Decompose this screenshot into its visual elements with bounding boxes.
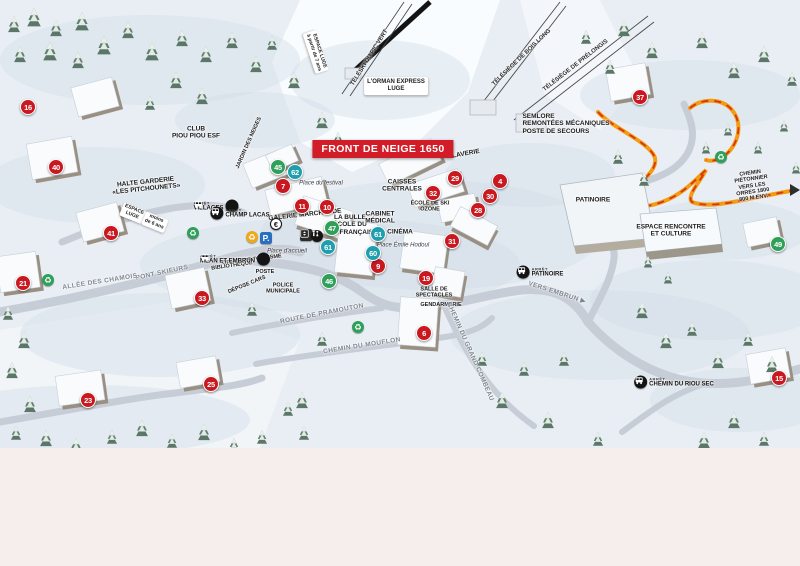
map-marker-4: 4 <box>492 173 508 189</box>
map-label: CLUB PIOU PIOU ESF <box>172 126 220 141</box>
recycle-yellow-icon: ♻ <box>246 231 258 243</box>
front-de-neige-banner: FRONT DE NEIGE 1650 <box>312 140 453 158</box>
map-marker-40: 40 <box>48 159 64 175</box>
map-marker-30: 30 <box>482 188 498 204</box>
map-marker-49: 49 <box>770 236 786 252</box>
legend-panel: RÉSIDENCES 4LE BALCON DES ORRES6LE BELVÉ… <box>0 448 800 566</box>
atm-icon: € <box>270 218 282 230</box>
map-marker-45: 45 <box>270 159 286 175</box>
map-label: CINÉMA <box>387 228 413 235</box>
bus-stop-name: CHEMIN DU RIOU SEC <box>649 381 714 387</box>
map-marker-61: 61 <box>370 226 386 242</box>
resort-map[interactable]: FRONT DE NEIGE 1650 16404121232533711109… <box>0 0 800 448</box>
recycle-green-icon: ♻ <box>352 321 364 333</box>
map-marker-62: 62 <box>287 164 303 180</box>
map-marker-6: 6 <box>416 325 432 341</box>
recycle-green-icon: ♻ <box>715 151 727 163</box>
map-marker-25: 25 <box>203 376 219 392</box>
map-label: Place Émile Hodoul <box>377 243 429 250</box>
map-label: POLICE MUNICIPALE <box>266 283 300 296</box>
recycle-green-icon: ♻ <box>187 227 199 239</box>
map-marker-29: 29 <box>447 170 463 186</box>
map-marker-41: 41 <box>103 225 119 241</box>
map-label: L'ORMAN EXPRESS LUGE <box>364 77 428 95</box>
map-label: PATINOIRE <box>576 196 610 203</box>
map-label: SALLE DE SPECTACLES <box>416 287 453 300</box>
map-label: Place du festival <box>299 181 343 188</box>
map-label: CABINET MÉDICAL <box>365 211 395 226</box>
map-label: POSTE <box>256 269 275 275</box>
map-marker-46: 46 <box>321 273 337 289</box>
map-marker-10: 10 <box>319 199 335 215</box>
map-label: SEMLORE REMONTÉES MÉCANIQUES POSTE DE SE… <box>522 113 609 135</box>
map-marker-33: 33 <box>194 290 210 306</box>
map-marker-15: 15 <box>771 370 787 386</box>
bus-stop-name: CHAMP LACAS <box>225 212 269 218</box>
map-marker-37: 37 <box>632 89 648 105</box>
map-marker-19: 19 <box>418 270 434 286</box>
map-marker-32: 32 <box>425 185 441 201</box>
bus-stop-chemin-du-riou-sec: ARRÊTCHEMIN DU RIOU SEC <box>634 376 714 389</box>
map-marker-61: 61 <box>320 239 336 255</box>
map-marker-7: 7 <box>275 178 291 194</box>
bus-icon <box>634 376 647 389</box>
les-orres-1650-resort-map-page: FRONT DE NEIGE 1650 16404121232533711109… <box>0 0 800 566</box>
map-marker-47: 47 <box>324 220 340 236</box>
bus-stop-patinoire: ARRÊTPATINOIRE <box>517 266 564 279</box>
map-label: CAISSES CENTRALES <box>382 179 422 194</box>
map-label: ÉCOLE DE SKI OZONE <box>411 201 450 214</box>
map-marker-31: 31 <box>444 233 460 249</box>
bus-stop-m-an-et-embrun: ARRÊTMÉAN ET EMBRUN <box>200 253 270 266</box>
map-marker-28: 28 <box>470 202 486 218</box>
map-marker-23: 23 <box>80 392 96 408</box>
map-label: ESPACE RENCONTRE ET CULTURE <box>636 224 705 239</box>
map-marker-11: 11 <box>294 198 310 214</box>
parking-icon: P. <box>260 232 272 244</box>
wc-icon <box>311 230 323 242</box>
bus-icon <box>517 266 530 279</box>
bus-stop-name: PATINOIRE <box>532 271 564 277</box>
bus-icon <box>210 207 223 220</box>
map-marker-60: 60 <box>365 245 381 261</box>
map-label: GENDARMERIE <box>420 302 461 308</box>
map-marker-21: 21 <box>15 275 31 291</box>
map-marker-16: 16 <box>20 99 36 115</box>
bus-stop-champ-lacas: ARRÊTCHAMP LACAS <box>210 207 269 220</box>
map-label: CHEMIN PIÉTONNIER VERS LES ORRES 1800 80… <box>726 167 778 205</box>
bus-icon <box>257 253 270 266</box>
recycle-green-icon: ♻ <box>42 274 54 286</box>
